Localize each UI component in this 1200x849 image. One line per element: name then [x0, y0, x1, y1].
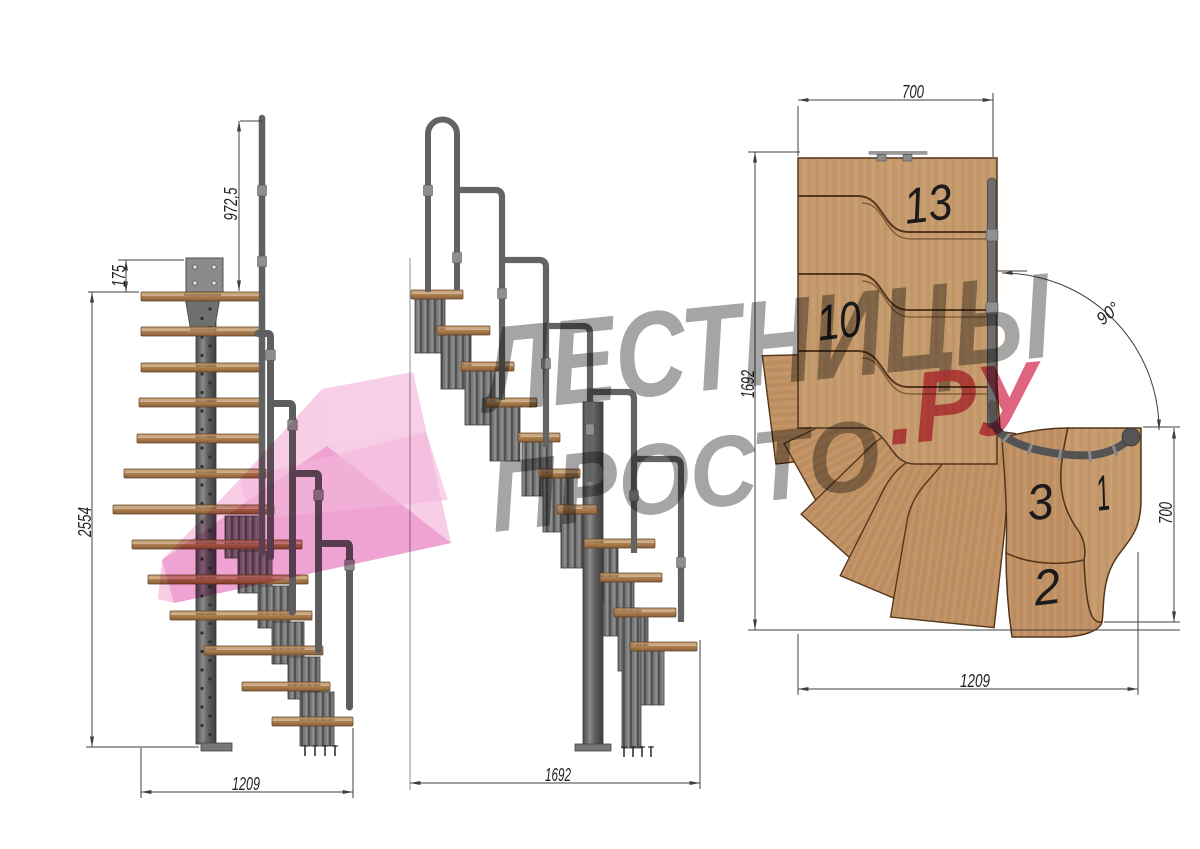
svg-text:2554: 2554 [75, 507, 95, 538]
svg-text:972,5: 972,5 [221, 187, 241, 221]
svg-text:1209: 1209 [232, 774, 260, 794]
svg-text:700: 700 [1156, 502, 1176, 524]
svg-text:700: 700 [902, 82, 924, 102]
svg-text:90°: 90° [1093, 298, 1124, 329]
svg-text:175: 175 [109, 264, 129, 287]
svg-text:.РУ: .РУ [881, 340, 1050, 467]
svg-text:13: 13 [901, 173, 956, 234]
svg-text:1692: 1692 [545, 765, 571, 785]
svg-text:1209: 1209 [960, 671, 990, 691]
